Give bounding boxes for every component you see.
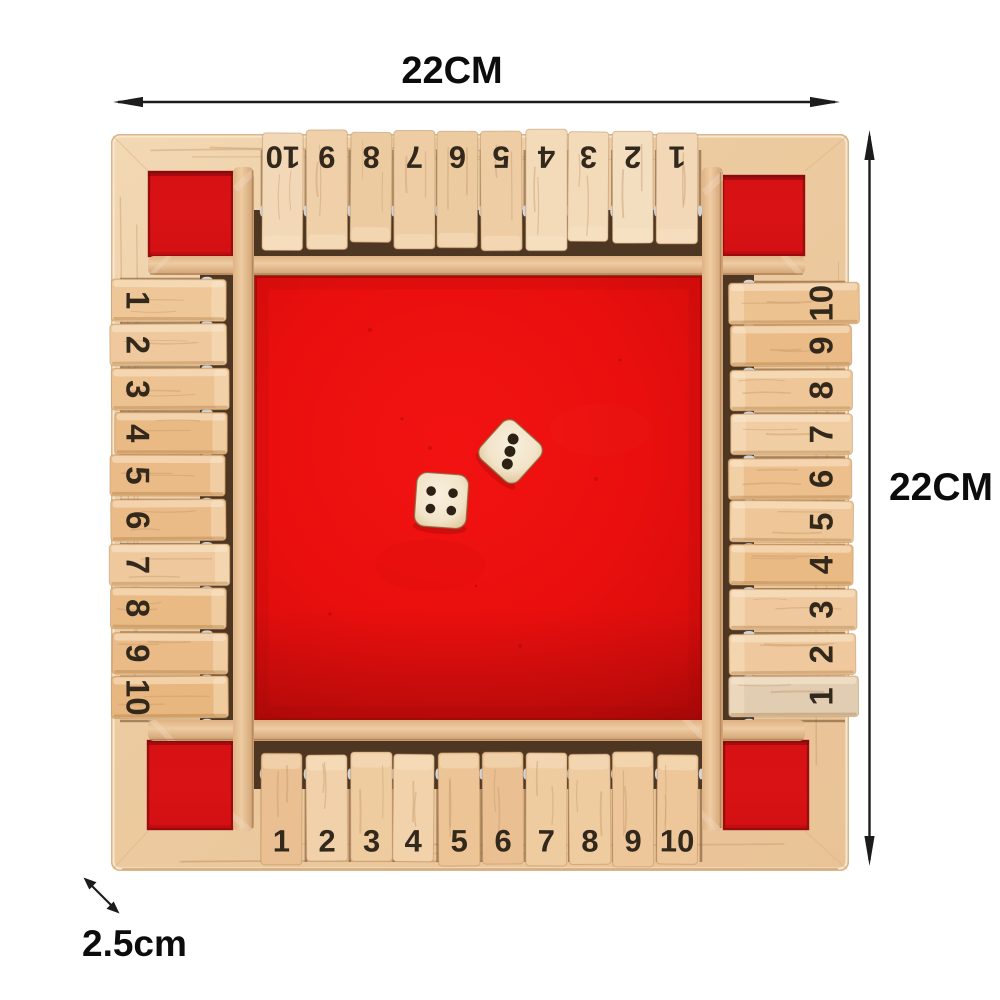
svg-text:5: 5 [802,512,839,531]
svg-text:7: 7 [538,823,555,858]
svg-text:8: 8 [362,139,380,174]
svg-text:7: 7 [406,139,423,174]
svg-text:6: 6 [449,139,466,174]
svg-text:22CM: 22CM [889,466,993,509]
svg-text:2: 2 [624,139,641,174]
svg-text:2: 2 [119,336,156,355]
svg-text:2.5cm: 2.5cm [82,923,187,964]
svg-text:4: 4 [119,424,156,443]
svg-text:4: 4 [802,555,839,574]
svg-text:1: 1 [802,687,839,705]
svg-text:3: 3 [580,139,598,174]
svg-text:9: 9 [624,823,641,858]
svg-text:8: 8 [581,823,599,858]
svg-text:10: 10 [265,139,300,174]
svg-text:1: 1 [119,291,156,309]
svg-text:1: 1 [273,823,290,858]
svg-text:9: 9 [318,139,335,174]
svg-text:3: 3 [802,600,839,618]
svg-text:9: 9 [802,336,839,355]
svg-text:4: 4 [537,139,555,174]
svg-text:6: 6 [802,470,839,489]
svg-text:10: 10 [119,679,156,716]
svg-text:6: 6 [119,511,156,530]
svg-text:3: 3 [363,823,380,858]
svg-text:6: 6 [494,823,511,858]
svg-text:7: 7 [802,425,839,443]
svg-text:2: 2 [318,823,336,858]
svg-text:5: 5 [492,139,509,174]
svg-text:1: 1 [668,139,685,174]
svg-text:22CM: 22CM [401,50,502,92]
svg-text:2: 2 [802,645,839,664]
svg-text:4: 4 [404,823,422,858]
svg-text:8: 8 [802,381,839,399]
svg-text:3: 3 [119,380,156,399]
svg-text:5: 5 [451,823,468,858]
svg-text:7: 7 [119,556,156,574]
svg-text:10: 10 [660,823,695,858]
svg-text:9: 9 [119,644,156,663]
svg-text:5: 5 [119,466,156,484]
svg-text:10: 10 [802,285,839,322]
svg-text:8: 8 [119,599,156,618]
